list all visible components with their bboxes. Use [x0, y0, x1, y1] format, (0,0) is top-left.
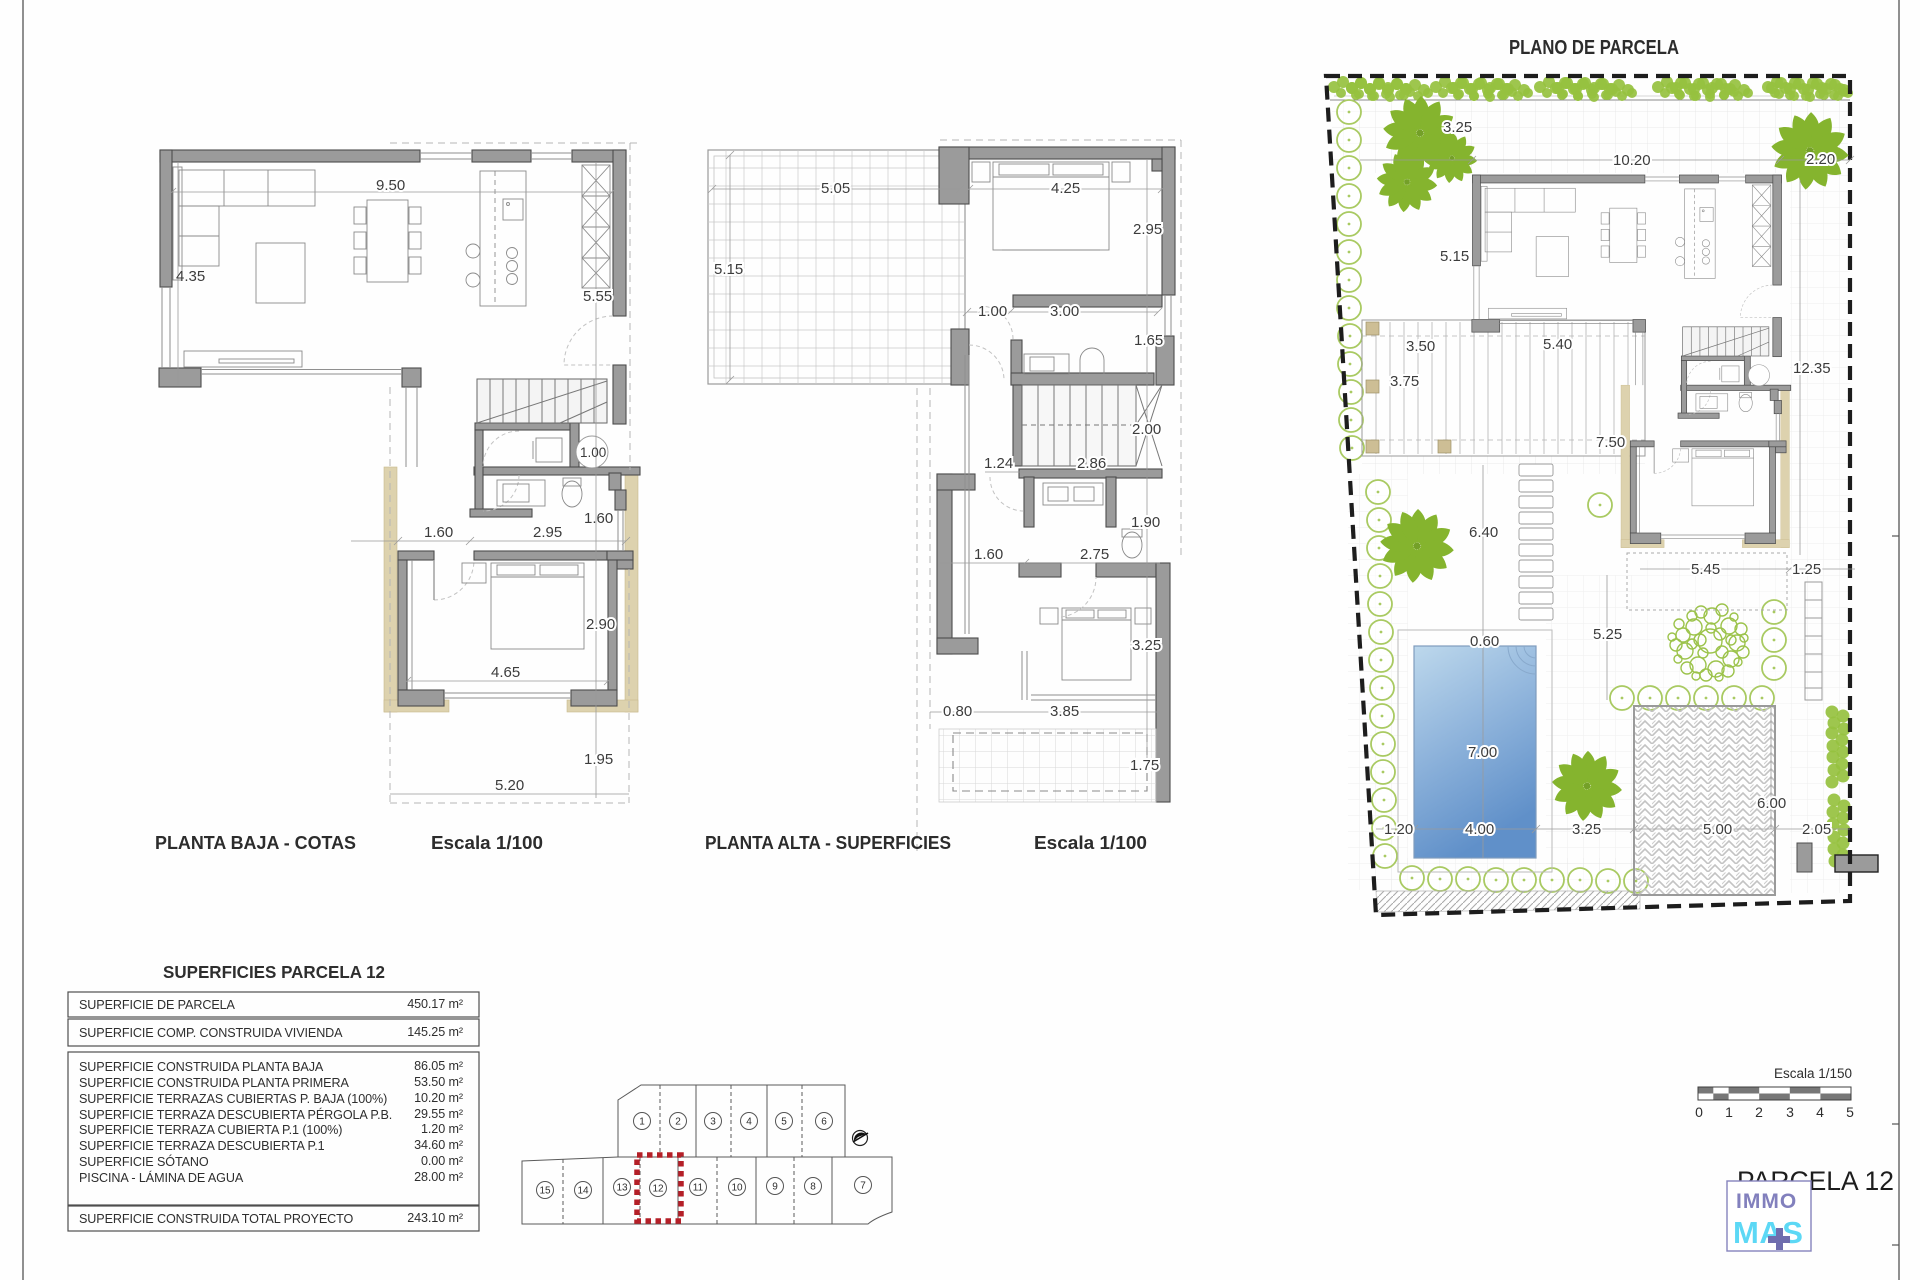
svg-text:1.60: 1.60 [584, 510, 613, 527]
svg-text:IMMO: IMMO [1736, 1190, 1797, 1213]
svg-text:5.40: 5.40 [1543, 336, 1572, 353]
svg-text:5.20: 5.20 [495, 777, 524, 794]
svg-text:SUPERFICIE CONSTRUIDA PLANTA B: SUPERFICIE CONSTRUIDA PLANTA BAJA [79, 1060, 324, 1074]
svg-text:6.00: 6.00 [1757, 795, 1786, 812]
svg-text:PLANO DE PARCELA: PLANO DE PARCELA [1509, 37, 1679, 59]
svg-text:28.00 m²: 28.00 m² [414, 1170, 463, 1184]
svg-text:1.90: 1.90 [1131, 514, 1160, 531]
svg-text:SUPERFICIE TERRAZA DESCUBIERTA: SUPERFICIE TERRAZA DESCUBIERTA P.1 [79, 1139, 325, 1153]
svg-text:1.00: 1.00 [978, 303, 1007, 320]
svg-text:1.60: 1.60 [974, 546, 1003, 563]
svg-text:PISCINA - LÁMINA DE AGUA: PISCINA - LÁMINA DE AGUA [79, 1170, 244, 1185]
svg-text:243.10 m²: 243.10 m² [407, 1211, 463, 1225]
svg-text:6.40: 6.40 [1469, 524, 1498, 541]
svg-text:29.55 m²: 29.55 m² [414, 1107, 463, 1121]
svg-text:1.75: 1.75 [1130, 757, 1159, 774]
svg-text:1.00: 1.00 [580, 445, 606, 460]
svg-text:12: 12 [652, 1184, 664, 1195]
svg-text:3.25: 3.25 [1572, 821, 1601, 838]
svg-text:1.20: 1.20 [1384, 821, 1413, 838]
svg-text:SUPERFICIE DE PARCELA: SUPERFICIE DE PARCELA [79, 998, 236, 1012]
svg-text:2.95: 2.95 [533, 524, 562, 541]
svg-text:Escala 1/150: Escala 1/150 [1774, 1066, 1852, 1081]
svg-text:MAS: MAS [1733, 1215, 1803, 1250]
svg-text:5: 5 [1846, 1104, 1854, 1120]
svg-text:5.00: 5.00 [1703, 821, 1732, 838]
svg-text:11: 11 [693, 1183, 704, 1194]
svg-text:2.00: 2.00 [1132, 421, 1161, 438]
svg-text:34.60 m²: 34.60 m² [414, 1138, 463, 1152]
svg-text:12.35: 12.35 [1793, 360, 1831, 377]
svg-text:13: 13 [616, 1183, 628, 1194]
svg-text:2.86: 2.86 [1077, 455, 1106, 472]
svg-text:SUPERFICIE COMP. CONSTRUIDA VI: SUPERFICIE COMP. CONSTRUIDA VIVIENDA [79, 1026, 343, 1040]
svg-text:5.15: 5.15 [1440, 248, 1469, 265]
svg-text:0: 0 [1695, 1104, 1703, 1120]
svg-text:5.45: 5.45 [1691, 561, 1720, 578]
svg-text:SUPERFICIE TERRAZA CUBIERTA P.: SUPERFICIE TERRAZA CUBIERTA P.1 (100%) [79, 1123, 342, 1137]
svg-text:4.65: 4.65 [491, 664, 520, 681]
svg-text:5.55: 5.55 [583, 288, 612, 305]
svg-text:5.25: 5.25 [1593, 626, 1622, 643]
svg-text:PLANTA BAJA - COTAS: PLANTA BAJA - COTAS [155, 833, 356, 853]
svg-text:8: 8 [810, 1182, 816, 1193]
svg-text:3.75: 3.75 [1390, 373, 1419, 390]
svg-text:3.50: 3.50 [1406, 338, 1435, 355]
svg-text:7: 7 [860, 1181, 866, 1192]
svg-text:Escala 1/100: Escala 1/100 [431, 833, 543, 853]
svg-text:Escala 1/100: Escala 1/100 [1034, 833, 1147, 853]
svg-text:4: 4 [1816, 1104, 1824, 1120]
svg-text:15: 15 [539, 1186, 551, 1197]
svg-text:86.05 m²: 86.05 m² [414, 1059, 463, 1073]
svg-text:SUPERFICIE TERRAZAS CUBIERTAS: SUPERFICIE TERRAZAS CUBIERTAS P. BAJA (1… [79, 1092, 387, 1106]
svg-text:9: 9 [772, 1182, 778, 1193]
svg-text:2.05: 2.05 [1802, 821, 1831, 838]
svg-text:2.90: 2.90 [586, 616, 615, 633]
svg-text:53.50 m²: 53.50 m² [414, 1075, 463, 1089]
svg-text:SUPERFICIE TERRAZA DESCUBIERTA: SUPERFICIE TERRAZA DESCUBIERTA PÉRGOLA P… [79, 1107, 392, 1122]
svg-text:2.75: 2.75 [1080, 546, 1109, 563]
svg-text:0.80: 0.80 [943, 703, 972, 720]
svg-text:SUPERFICIE CONSTRUIDA PLANTA P: SUPERFICIE CONSTRUIDA PLANTA PRIMERA [79, 1076, 349, 1090]
svg-text:9.50: 9.50 [376, 177, 405, 194]
svg-text:3: 3 [710, 1117, 716, 1128]
svg-text:1.24: 1.24 [984, 455, 1013, 472]
svg-text:1: 1 [639, 1117, 645, 1128]
svg-text:2: 2 [1755, 1104, 1763, 1120]
svg-text:3.25: 3.25 [1443, 119, 1472, 136]
svg-text:SUPERFICIE SÓTANO: SUPERFICIE SÓTANO [79, 1154, 209, 1169]
svg-text:0.00 m²: 0.00 m² [421, 1154, 463, 1168]
svg-text:2.20: 2.20 [1806, 151, 1835, 168]
svg-text:3.00: 3.00 [1050, 303, 1079, 320]
svg-text:7.00: 7.00 [1468, 744, 1497, 761]
svg-text:450.17 m²: 450.17 m² [407, 997, 463, 1011]
svg-text:4: 4 [746, 1117, 752, 1128]
svg-text:10.20: 10.20 [1613, 152, 1651, 169]
svg-text:2: 2 [675, 1117, 681, 1128]
svg-text:145.25 m²: 145.25 m² [407, 1025, 463, 1039]
svg-text:14: 14 [577, 1186, 589, 1197]
svg-text:1: 1 [1725, 1104, 1733, 1120]
svg-text:1.95: 1.95 [584, 751, 613, 768]
svg-text:PLANTA ALTA - SUPERFICIES: PLANTA ALTA - SUPERFICIES [705, 833, 951, 853]
svg-text:4.00: 4.00 [1465, 821, 1494, 838]
svg-text:SUPERFICIE CONSTRUIDA TOTAL PR: SUPERFICIE CONSTRUIDA TOTAL PROYECTO [79, 1212, 354, 1226]
svg-text:3: 3 [1786, 1104, 1794, 1120]
svg-text:0.60: 0.60 [1470, 633, 1499, 650]
svg-text:10.20 m²: 10.20 m² [414, 1091, 463, 1105]
svg-text:4.25: 4.25 [1051, 180, 1080, 197]
svg-text:SUPERFICIES PARCELA 12: SUPERFICIES PARCELA 12 [163, 962, 385, 982]
svg-text:10: 10 [731, 1183, 743, 1194]
svg-text:3.25: 3.25 [1132, 637, 1161, 654]
svg-text:1.25: 1.25 [1792, 561, 1821, 578]
svg-text:3.85: 3.85 [1050, 703, 1079, 720]
svg-text:1.20 m²: 1.20 m² [421, 1122, 463, 1136]
svg-text:1.60: 1.60 [424, 524, 453, 541]
svg-text:4.35: 4.35 [176, 268, 205, 285]
svg-text:5.15: 5.15 [714, 261, 743, 278]
svg-text:2.95: 2.95 [1133, 221, 1162, 238]
svg-text:1.65: 1.65 [1134, 332, 1163, 349]
svg-text:5: 5 [781, 1117, 787, 1128]
svg-text:7.50: 7.50 [1596, 434, 1625, 451]
svg-text:5.05: 5.05 [821, 180, 850, 197]
svg-text:6: 6 [821, 1117, 827, 1128]
